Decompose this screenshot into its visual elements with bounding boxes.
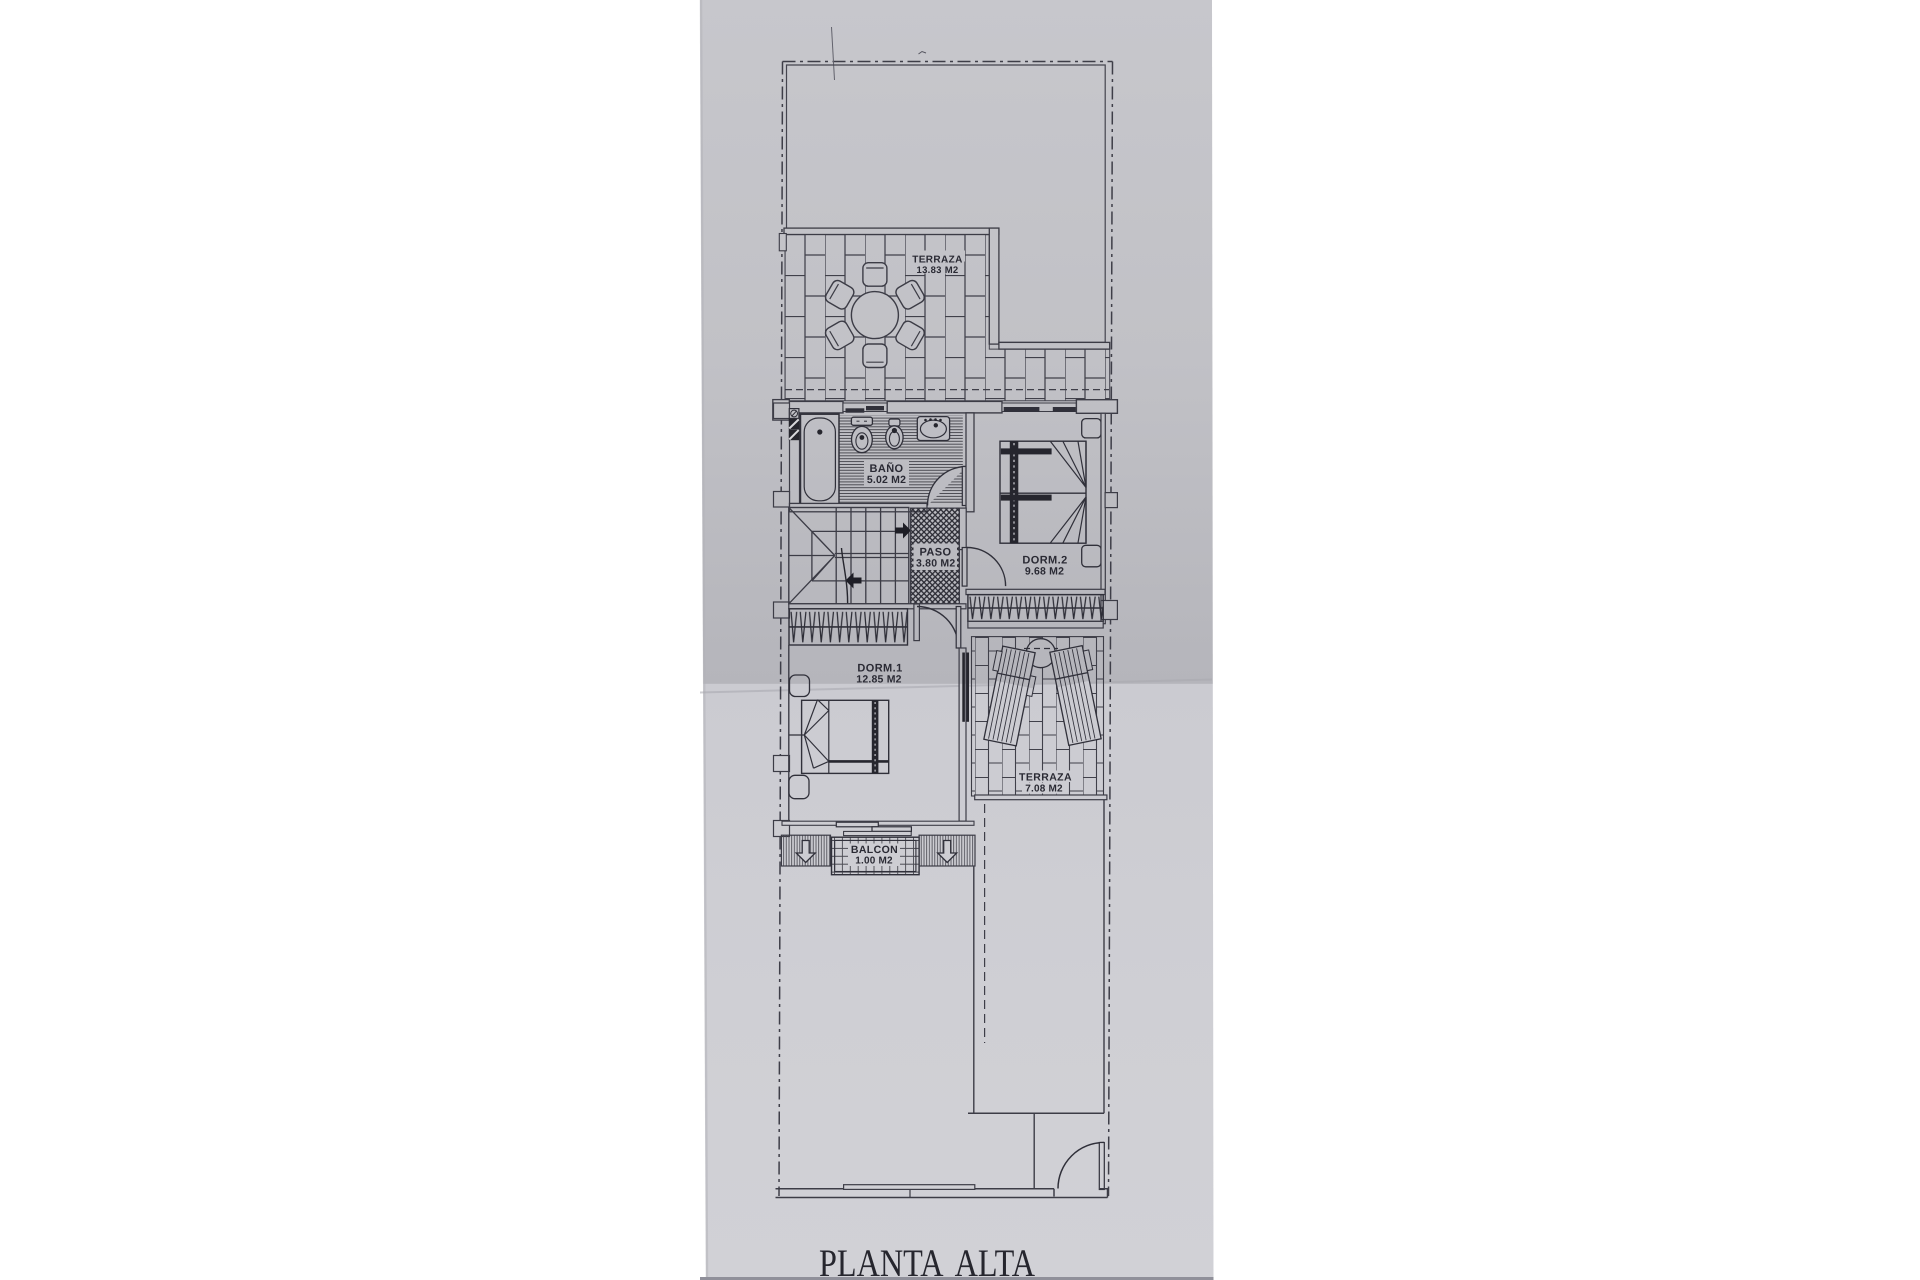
- svg-text:TERRAZA: TERRAZA: [1019, 772, 1072, 784]
- svg-text:PLANTA ALTA: PLANTA ALTA: [819, 1242, 1035, 1280]
- svg-text:9.68 M2: 9.68 M2: [1025, 566, 1064, 578]
- svg-text:1.00 M2: 1.00 M2: [855, 856, 893, 867]
- svg-text:13.83 M2: 13.83 M2: [916, 265, 958, 276]
- svg-text:12.85 M2: 12.85 M2: [856, 674, 901, 686]
- svg-text:5.02 M2: 5.02 M2: [867, 474, 906, 486]
- svg-text:BALCON: BALCON: [851, 844, 898, 856]
- svg-text:3.80 M2: 3.80 M2: [916, 558, 955, 570]
- svg-text:7.08 M2: 7.08 M2: [1025, 784, 1063, 795]
